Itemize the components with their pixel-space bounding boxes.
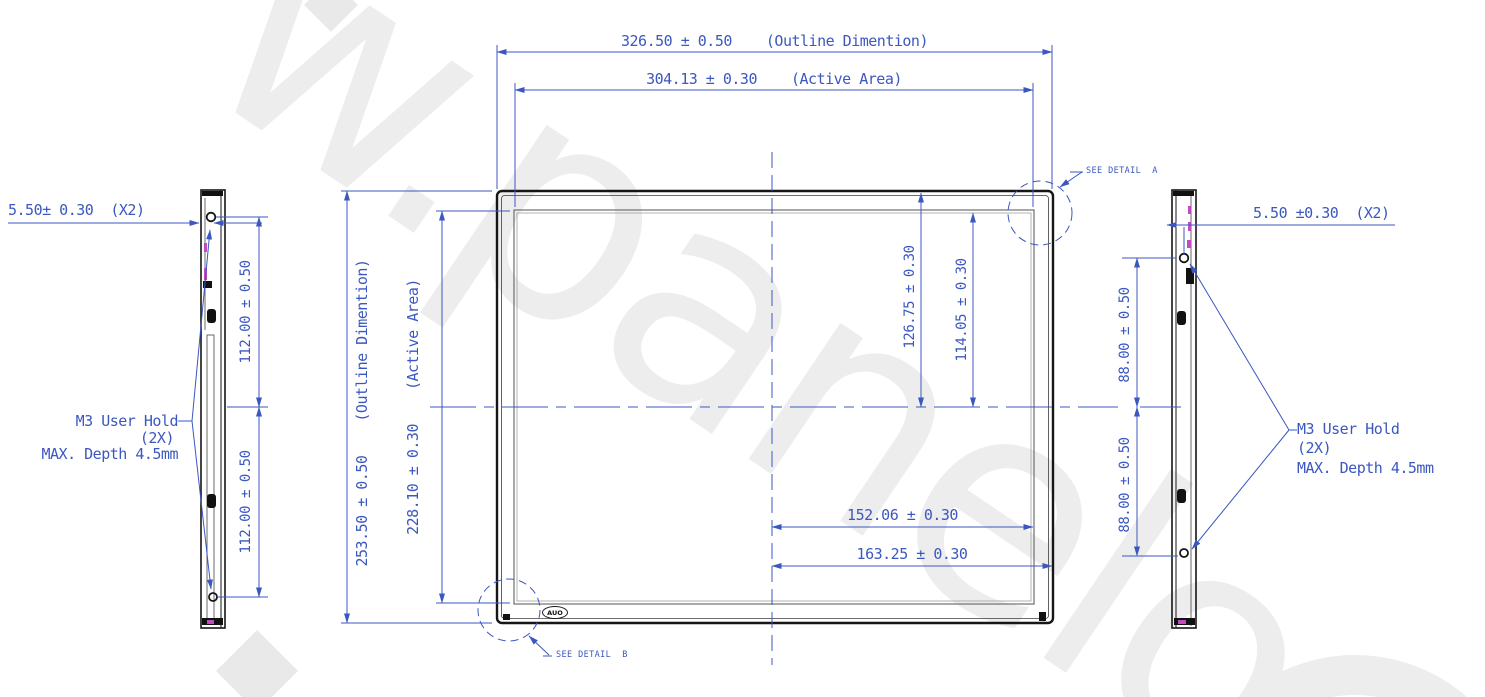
- see-detail-b-label: SEE DETAIL B: [556, 651, 628, 660]
- left-dim-hole-offset: 5.50± 0.30 (X2): [8, 202, 145, 218]
- dim-outline-height: 253.50 ± 0.50 (Outline Dimention): [354, 260, 370, 567]
- left-latch-top: [207, 309, 216, 323]
- left-dim-hole-spacing-bottom: 112.00 ± 0.50: [238, 450, 254, 553]
- dim-outline-width-label: (Outline Dimention): [766, 33, 928, 49]
- left-m3-note-line2: (2X): [0, 430, 174, 446]
- right-connector-accent-3: [1187, 240, 1191, 248]
- dim-active-height-label: (Active Area): [405, 279, 421, 390]
- dimension-lines: [8, 45, 1395, 665]
- left-top-cap: [202, 191, 223, 196]
- bottom-left-pad: [503, 614, 510, 620]
- left-connector-accent-1: [204, 243, 207, 252]
- drawing-canvas: [0, 0, 1485, 697]
- right-side-view: [1172, 190, 1196, 628]
- right-dim-hole-offset: 5.50 ±0.30 (X2): [1253, 205, 1390, 221]
- right-dim-hole-spacing-top: 88.00 ± 0.50: [1117, 287, 1133, 382]
- bottom-right-pad: [1039, 612, 1046, 621]
- right-latch-top: [1177, 311, 1186, 325]
- dim-outline-width: 326.50 ± 0.50 (Outline Dimention): [497, 33, 1052, 49]
- auo-logo: AUO: [542, 606, 568, 619]
- right-dim-hole-spacing-bottom: 88.00 ± 0.50: [1117, 437, 1133, 532]
- dim-active-width-label: (Active Area): [791, 71, 902, 87]
- dim-active-width: 304.13 ± 0.30 (Active Area): [515, 71, 1033, 87]
- dim-center-to-top-outline: 126.75 ± 0.30: [902, 245, 918, 348]
- right-mount-hole-bottom: [1180, 549, 1188, 557]
- left-latch-bottom: [207, 494, 216, 508]
- dim-center-to-top-active: 114.05 ± 0.30: [954, 258, 970, 361]
- left-m3-note-line1: M3 User Hold: [0, 413, 178, 429]
- dim-outline-height-value: 253.50 ± 0.50: [354, 456, 370, 567]
- dim-outline-width-value: 326.50 ± 0.50: [621, 33, 732, 49]
- right-connector-accent-1: [1188, 206, 1191, 214]
- mechanical-drawing-sheet: w.panelo: [0, 0, 1485, 697]
- dim-active-height: 228.10 ± 0.30 (Active Area): [405, 279, 421, 535]
- dim-active-height-value: 228.10 ± 0.30: [405, 424, 421, 535]
- right-m3-note-line3: MAX. Depth 4.5mm: [1297, 460, 1434, 476]
- dim-center-to-right-active: 152.06 ± 0.30: [772, 507, 1033, 523]
- see-detail-a-label: SEE DETAIL A: [1086, 167, 1158, 176]
- left-dim-hole-spacing-top: 112.00 ± 0.50: [238, 260, 254, 363]
- detail-b-circle: [478, 579, 540, 641]
- left-m3-note-line3: MAX. Depth 4.5mm: [0, 446, 178, 462]
- dim-center-to-right-outline: 163.25 ± 0.30: [772, 546, 1052, 562]
- right-connector-accent-2: [1188, 222, 1191, 231]
- right-top-cap: [1173, 191, 1194, 196]
- right-latch-bottom: [1177, 489, 1186, 503]
- right-m3-note-line1: M3 User Hold: [1297, 421, 1399, 437]
- dim-active-width-value: 304.13 ± 0.30: [646, 71, 757, 87]
- dim-outline-height-label: (Outline Dimention): [354, 260, 370, 422]
- left-mount-hole-bottom: [209, 593, 217, 601]
- right-m3-note-line2: (2X): [1297, 440, 1331, 456]
- left-side-view: [201, 190, 225, 628]
- left-mount-hole-top: [207, 213, 216, 222]
